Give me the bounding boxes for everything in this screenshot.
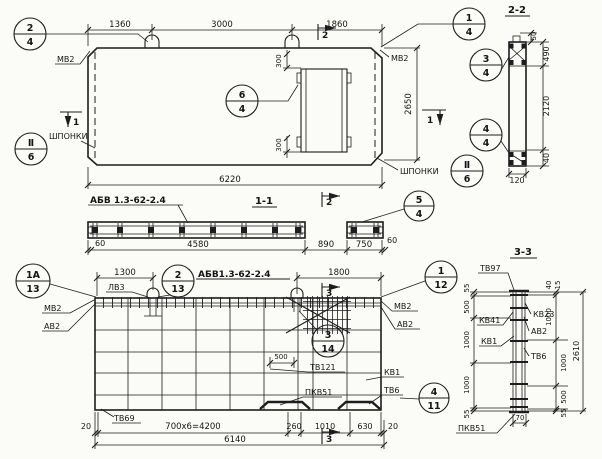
section-1-1-dims: 60 4580 890 750 60 bbox=[85, 236, 397, 255]
section-3-3-right-dims: 40 15 1000 1000 500 55 2610 bbox=[527, 281, 586, 418]
svg-text:630: 630 bbox=[357, 422, 372, 431]
slab-profile-piece bbox=[347, 222, 383, 238]
kv1-label-33: КВ1 bbox=[479, 336, 514, 346]
svg-text:МВ2: МВ2 bbox=[394, 302, 411, 311]
svg-text:6: 6 bbox=[464, 174, 471, 185]
svg-text:12: 12 bbox=[434, 280, 447, 291]
callout-5-4: 5 4 bbox=[362, 191, 434, 222]
svg-text:1300: 1300 bbox=[114, 268, 136, 278]
section-2-2-bottom-block bbox=[509, 151, 526, 166]
svg-text:КВ1: КВ1 bbox=[481, 337, 497, 346]
svg-text:4: 4 bbox=[416, 209, 423, 220]
svg-text:55: 55 bbox=[560, 409, 568, 418]
svg-text:6: 6 bbox=[239, 90, 246, 101]
svg-text:МВ2: МВ2 bbox=[57, 55, 74, 64]
slab-mark-label: АБВ 1.3-62-2.4 bbox=[88, 196, 188, 223]
section-2-2-top-block bbox=[509, 36, 526, 66]
callout-1-12: 1 12 bbox=[381, 261, 457, 297]
mv2-label-elev-right: МВ2 bbox=[381, 301, 418, 311]
section-1-1: АБВ 1.3-62-2.4 1-1 bbox=[85, 191, 434, 255]
svg-text:КВ41: КВ41 bbox=[479, 316, 500, 325]
plan-top-dims: 1360 3000 1860 bbox=[85, 20, 385, 46]
section-cut-1-left: 1 bbox=[60, 112, 82, 128]
svg-text:ТВ97: ТВ97 bbox=[479, 264, 501, 273]
svg-text:500: 500 bbox=[560, 390, 568, 403]
elevation-view: АБВ1.3-62-2.4 1300 1800 bbox=[16, 261, 457, 449]
svg-text:490: 490 bbox=[542, 46, 551, 61]
svg-text:55: 55 bbox=[463, 284, 471, 293]
svg-text:700x6=4200: 700x6=4200 bbox=[165, 422, 220, 432]
kv41-label: КВ41 bbox=[477, 312, 513, 325]
mv2-label-elev-left: МВ2 bbox=[42, 300, 94, 313]
tv97-label: ТВ97 bbox=[478, 264, 514, 290]
slab-profile-main bbox=[88, 222, 305, 238]
svg-text:ТВ69: ТВ69 bbox=[113, 414, 135, 423]
section-2-2-title: 2-2 bbox=[508, 5, 526, 16]
svg-text:15: 15 bbox=[554, 281, 562, 290]
svg-text:300: 300 bbox=[275, 138, 283, 151]
opening-dim-top: 300 bbox=[275, 50, 301, 71]
opening-mesh-zone bbox=[303, 296, 351, 334]
svg-text:5: 5 bbox=[416, 195, 423, 206]
svg-text:КВ1: КВ1 bbox=[384, 368, 400, 377]
svg-text:4: 4 bbox=[483, 124, 490, 135]
svg-text:20: 20 bbox=[388, 422, 398, 431]
svg-text:6: 6 bbox=[28, 152, 35, 163]
svg-text:1000: 1000 bbox=[463, 331, 471, 349]
elevation-title: АБВ1.3-62-2.4 bbox=[196, 270, 290, 280]
svg-text:1: 1 bbox=[466, 13, 473, 24]
svg-text:АБВ 1.3-62-2.4: АБВ 1.3-62-2.4 bbox=[90, 196, 166, 206]
section-3-3-title: 3-3 bbox=[514, 247, 532, 258]
callout-3-4: 3 4 bbox=[470, 49, 509, 81]
callout-6-4: 6 4 bbox=[226, 85, 298, 117]
svg-text:40: 40 bbox=[545, 281, 553, 290]
svg-text:ПКВ51: ПКВ51 bbox=[305, 388, 332, 397]
section-cut-1-right: 1 bbox=[422, 110, 446, 126]
svg-text:2: 2 bbox=[326, 198, 332, 208]
callout-1a-13: 1А 13 bbox=[16, 264, 96, 298]
dim-2650: 2650 bbox=[404, 93, 414, 115]
svg-text:АВ2: АВ2 bbox=[397, 320, 413, 329]
svg-text:ЛВ3: ЛВ3 bbox=[108, 283, 125, 292]
svg-text:4: 4 bbox=[483, 138, 490, 149]
dim-6220: 6220 bbox=[219, 175, 241, 185]
svg-text:11: 11 bbox=[427, 401, 440, 412]
svg-text:2120: 2120 bbox=[542, 96, 551, 116]
callout-4-11: 4 11 bbox=[400, 383, 449, 413]
panel-outline bbox=[88, 48, 382, 165]
plan-bottom-dim: 6220 bbox=[85, 167, 385, 189]
shponki-label-right: ШПОНКИ bbox=[400, 167, 439, 176]
svg-text:Ⅱ: Ⅱ bbox=[464, 160, 470, 171]
plan-view: 1360 3000 1860 2 2 6220 2650 300 bbox=[14, 8, 509, 208]
svg-text:2: 2 bbox=[175, 270, 182, 281]
svg-text:4: 4 bbox=[431, 387, 438, 398]
svg-text:55: 55 bbox=[463, 410, 471, 419]
svg-text:АВ2: АВ2 bbox=[44, 322, 60, 331]
svg-text:ТВ6: ТВ6 bbox=[383, 386, 399, 395]
svg-text:Ⅱ: Ⅱ bbox=[28, 138, 34, 149]
svg-text:ТВ6: ТВ6 bbox=[530, 352, 546, 361]
svg-text:300: 300 bbox=[275, 54, 283, 67]
section-cut-2-bottom: 2 bbox=[322, 192, 340, 208]
callout-4-4: 4 4 bbox=[470, 119, 509, 153]
svg-text:750: 750 bbox=[356, 240, 372, 250]
section-1-1-title: 1-1 bbox=[255, 196, 273, 207]
svg-text:4580: 4580 bbox=[187, 240, 209, 250]
svg-text:3: 3 bbox=[326, 289, 332, 299]
svg-text:2: 2 bbox=[322, 31, 328, 41]
svg-text:3: 3 bbox=[326, 435, 332, 445]
svg-text:13: 13 bbox=[171, 284, 184, 295]
svg-text:70: 70 bbox=[516, 414, 525, 422]
kv1-label-elev: КВ1 bbox=[366, 368, 404, 380]
svg-text:4: 4 bbox=[27, 37, 34, 48]
svg-text:1000: 1000 bbox=[463, 376, 471, 394]
tv6-label-33: ТВ6 bbox=[524, 348, 546, 361]
svg-text:890: 890 bbox=[318, 240, 334, 250]
svg-text:ТВ121: ТВ121 bbox=[309, 363, 336, 372]
drawing-canvas: 1360 3000 1860 2 2 6220 2650 300 bbox=[0, 0, 602, 459]
svg-text:500: 500 bbox=[274, 353, 287, 361]
dim-3000: 3000 bbox=[211, 20, 233, 30]
svg-text:40: 40 bbox=[542, 153, 551, 163]
svg-text:АВ2: АВ2 bbox=[531, 327, 547, 336]
svg-text:120: 120 bbox=[509, 176, 524, 185]
callout-1-4: 1 4 bbox=[381, 8, 485, 47]
mv2-label-right: МВ2 bbox=[380, 50, 408, 63]
svg-text:20: 20 bbox=[81, 422, 91, 431]
lv3-label: ЛВ3 bbox=[106, 283, 148, 297]
inner-dim-500: 500 bbox=[267, 353, 297, 368]
tv69-label: ТВ69 bbox=[101, 409, 141, 423]
drawing-sheet: 1360 3000 1860 2 2 6220 2650 300 bbox=[0, 0, 602, 459]
svg-text:1800: 1800 bbox=[328, 268, 350, 278]
svg-text:4: 4 bbox=[239, 104, 246, 115]
svg-text:1: 1 bbox=[438, 266, 445, 277]
svg-text:4: 4 bbox=[466, 27, 473, 38]
svg-text:2: 2 bbox=[27, 23, 34, 34]
slab-ribs bbox=[93, 223, 300, 237]
callout-2-13: 2 13 bbox=[158, 265, 194, 297]
section-3-3-left-dims: 55 500 1000 1000 55 bbox=[463, 284, 511, 419]
svg-text:60: 60 bbox=[387, 236, 397, 245]
svg-text:6140: 6140 bbox=[224, 435, 246, 445]
svg-text:260: 260 bbox=[286, 422, 301, 431]
svg-text:14: 14 bbox=[321, 344, 335, 355]
svg-text:1: 1 bbox=[427, 116, 433, 126]
panel-opening bbox=[297, 69, 351, 152]
callout-shponki-right: Ⅱ 6 bbox=[451, 155, 483, 187]
svg-text:1010: 1010 bbox=[315, 422, 335, 431]
callout-shponki-left: Ⅱ 6 bbox=[15, 133, 47, 165]
svg-text:3: 3 bbox=[483, 54, 490, 65]
kv23-label: КВ23 bbox=[525, 303, 554, 319]
svg-text:4: 4 bbox=[483, 68, 490, 79]
bottom-plate-right bbox=[338, 402, 380, 409]
svg-text:500: 500 bbox=[463, 300, 471, 313]
svg-text:МВ2: МВ2 bbox=[44, 304, 61, 313]
svg-text:13: 13 bbox=[26, 284, 39, 295]
svg-text:60: 60 bbox=[95, 239, 105, 248]
section-3-3: 3-3 ТВ97 55 500 1000 1000 55 40 15 bbox=[456, 247, 586, 433]
svg-text:ПКВ51: ПКВ51 bbox=[458, 424, 485, 433]
svg-text:1А: 1А bbox=[26, 270, 41, 281]
svg-text:КВ23: КВ23 bbox=[533, 310, 554, 319]
slab-rib-plates bbox=[92, 227, 301, 233]
dim-1360: 1360 bbox=[109, 20, 131, 30]
svg-text:1: 1 bbox=[73, 118, 79, 128]
mv2-label-left: МВ2 bbox=[55, 51, 90, 64]
svg-text:МВ2: МВ2 bbox=[391, 54, 408, 63]
tv121-label: ТВ121 bbox=[270, 363, 345, 372]
svg-text:1000: 1000 bbox=[560, 354, 568, 372]
shponki-label-left: ШПОНКИ bbox=[49, 132, 88, 141]
section-2-2: 2-2 50 490 2120 40 120 bbox=[505, 5, 551, 185]
svg-text:2610: 2610 bbox=[572, 341, 581, 361]
svg-text:3: 3 bbox=[325, 330, 332, 341]
